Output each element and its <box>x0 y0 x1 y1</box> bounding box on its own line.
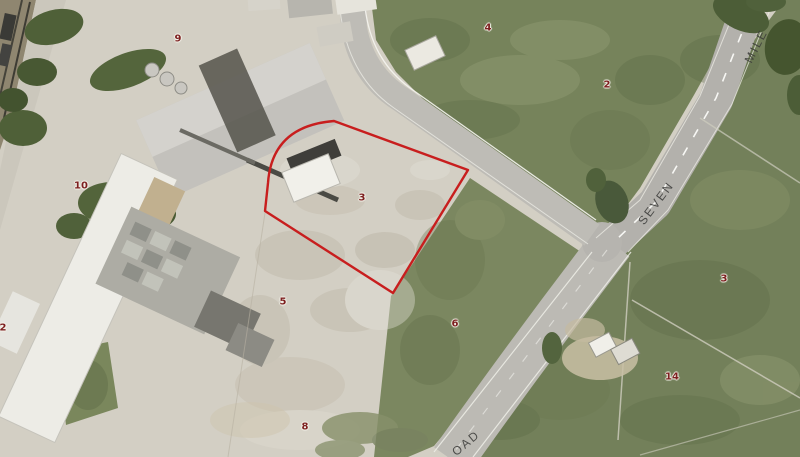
map-view[interactable]: MILE SEVEN OAD 9 4 2 10 3 5 6 3 14 2 8 <box>0 0 800 457</box>
aerial-imagery-canvas[interactable] <box>0 0 800 457</box>
